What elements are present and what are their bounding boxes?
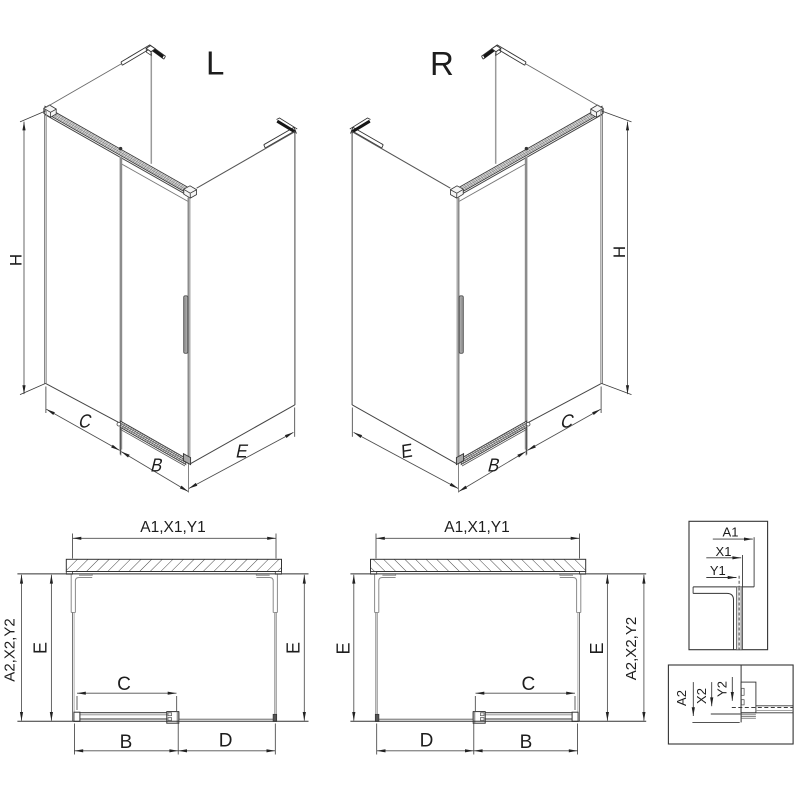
svg-text:E: E — [334, 642, 354, 654]
svg-text:R: R — [430, 45, 454, 82]
svg-text:D: D — [219, 731, 233, 752]
svg-text:A2,X2,Y2: A2,X2,Y2 — [623, 617, 640, 680]
svg-text:E: E — [587, 642, 607, 654]
svg-text:B: B — [120, 732, 133, 753]
svg-text:A1,X1,Y1: A1,X1,Y1 — [444, 519, 510, 536]
svg-text:X2: X2 — [694, 688, 709, 704]
svg-text:C: C — [117, 674, 131, 695]
svg-text:L: L — [206, 45, 224, 82]
svg-text:Y1: Y1 — [710, 563, 726, 578]
svg-text:E: E — [31, 642, 51, 654]
svg-text:H: H — [7, 254, 26, 266]
svg-text:C: C — [522, 674, 536, 695]
svg-text:H: H — [610, 246, 629, 258]
svg-text:X1: X1 — [716, 544, 732, 559]
svg-text:D: D — [420, 731, 434, 752]
svg-text:A1,X1,Y1: A1,X1,Y1 — [140, 519, 206, 536]
svg-text:E: E — [284, 642, 304, 654]
svg-text:A2: A2 — [674, 690, 689, 706]
svg-text:Y2: Y2 — [715, 681, 730, 697]
svg-text:A1: A1 — [723, 524, 739, 539]
svg-text:B: B — [520, 732, 533, 753]
svg-text:A2,X2,Y2: A2,X2,Y2 — [2, 618, 19, 681]
svg-text:E: E — [401, 440, 413, 463]
